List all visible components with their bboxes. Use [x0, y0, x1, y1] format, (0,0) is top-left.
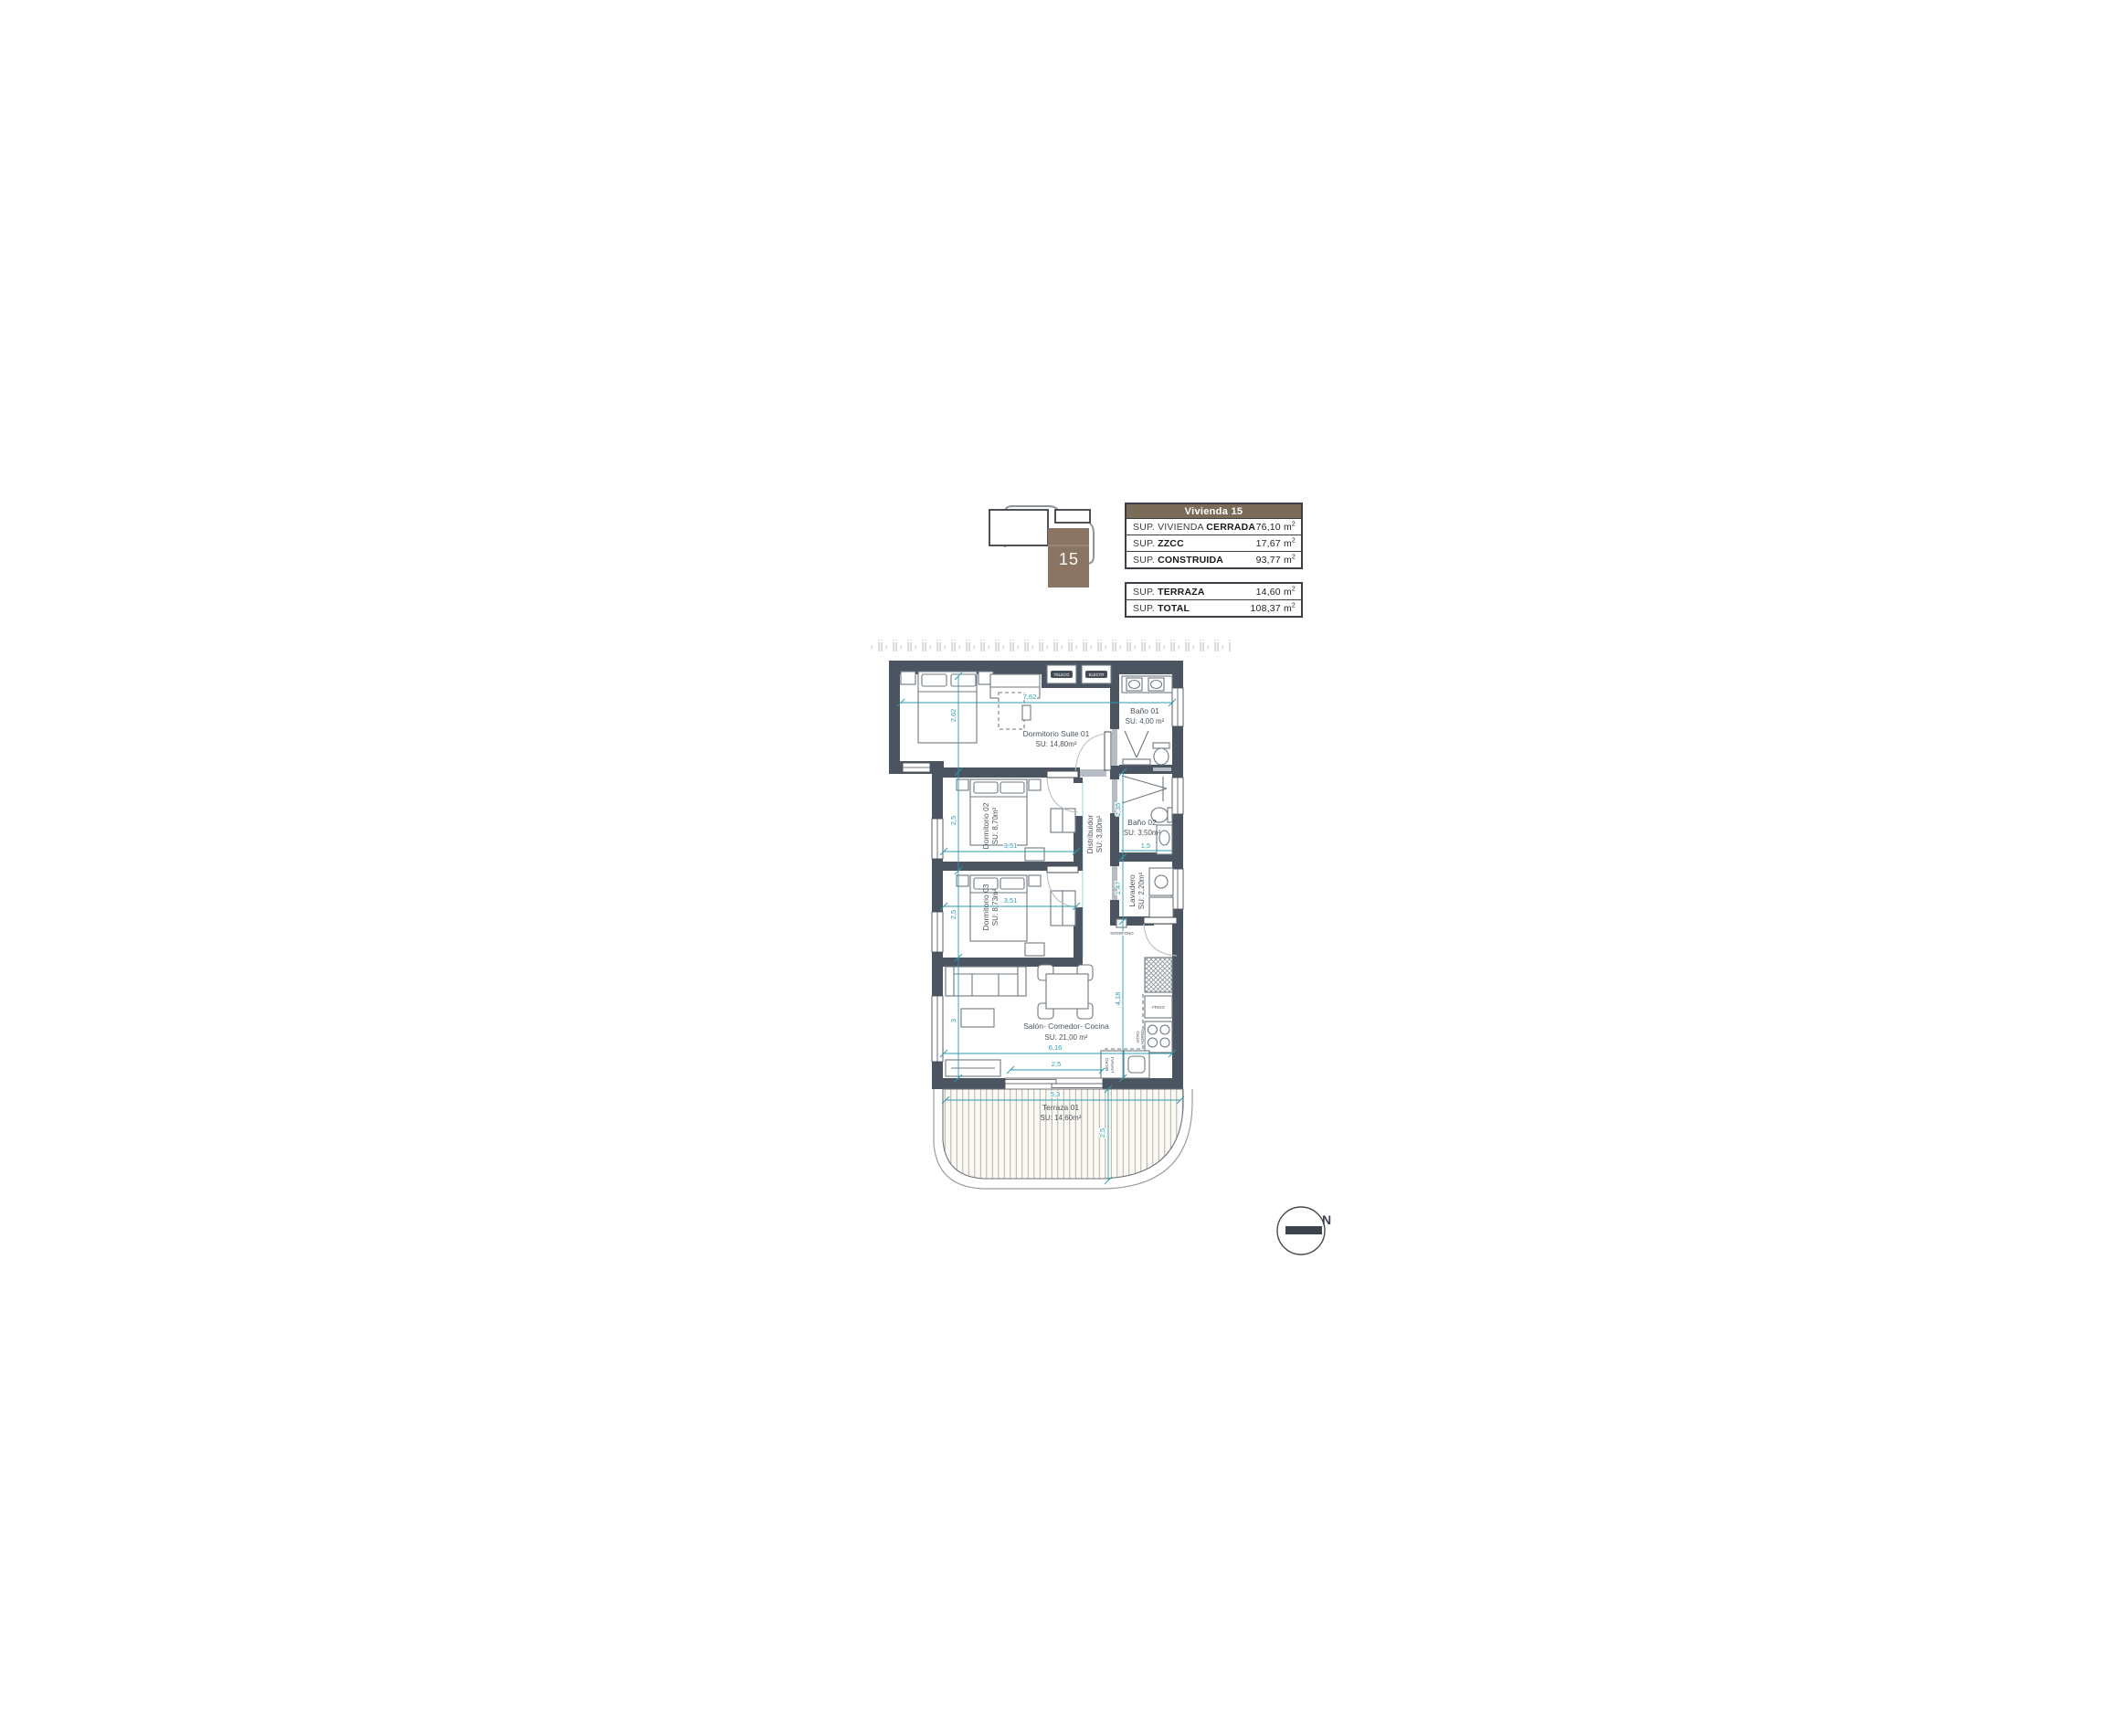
room-label-terraza-01: Terraza 01: [1042, 1103, 1079, 1112]
row-label: SUP. CONSTRUIDA: [1127, 555, 1223, 566]
row-label-text: SUP.: [1133, 603, 1158, 614]
row-value-text: 108,37 m: [1251, 603, 1292, 614]
pillow: [1000, 878, 1024, 889]
room-label-bano-02: Baño 02: [1127, 818, 1157, 827]
entry-door: [1144, 917, 1177, 956]
sliding-door: [1005, 1078, 1103, 1089]
pillow: [922, 674, 947, 686]
sink-basin: [1151, 681, 1162, 689]
room-label-dormitorio-02: Dormitorio 02: [981, 802, 990, 849]
window: [932, 912, 943, 952]
room-area-salon-comedor-cocina: SU: 21,00 m²: [1044, 1033, 1087, 1042]
row-label-bold: CONSTRUIDA: [1158, 555, 1223, 566]
dim-label: 3,51: [1004, 896, 1018, 905]
row-label-bold: ZZCC: [1158, 538, 1184, 549]
pillow: [1000, 782, 1024, 793]
door: [1047, 771, 1078, 812]
room-area-dormitorio-suite-01: SU: 14,80m²: [1036, 740, 1077, 748]
dim-label: 2,5: [1052, 1060, 1061, 1068]
row-value-text: 76,10 m: [1256, 522, 1292, 533]
row-value: 108,37 m2: [1251, 603, 1301, 614]
plan-canvas: 15: [0, 0, 2105, 1736]
sink-basin: [1129, 681, 1140, 689]
sofa: [946, 967, 1026, 996]
table-row: SUP. CONSTRUIDA 93,77 m2: [1127, 551, 1301, 567]
dim-label: 2,5: [1098, 1128, 1106, 1138]
teleco-label: TELECO: [1054, 672, 1070, 677]
row-value-sup: 2: [1292, 537, 1296, 544]
sofa-armrest: [1018, 967, 1026, 996]
pantry-column: [1145, 958, 1172, 992]
row-value-sup: 2: [1292, 586, 1296, 592]
row-label: SUP. ZZCC: [1127, 538, 1184, 549]
dim-label: 6,16: [1049, 1043, 1063, 1052]
sink-basin: [1159, 831, 1169, 845]
summary-table-totals: SUP. TERRAZA 14,60 m2 SUP. TOTAL 108,37 …: [1125, 582, 1303, 618]
toilet-tank: [1168, 808, 1172, 822]
pillow: [951, 674, 976, 686]
room-area-dormitorio-02: SU: 8,70m²: [991, 807, 1000, 844]
row-value-text: 14,60 m: [1256, 587, 1292, 598]
dim-label: 2,5: [949, 910, 957, 919]
dresser: [1025, 848, 1044, 861]
room-area-lavadero: SU: 2,20m²: [1137, 872, 1146, 909]
door-threshold: [1080, 769, 1106, 777]
wall-segment: [1119, 765, 1183, 774]
coffee-table: [961, 1009, 994, 1027]
table-row: SUP. TOTAL 108,37 m2: [1127, 599, 1301, 616]
laundry-cabinet: [1149, 897, 1173, 917]
room-label-dormitorio-03: Dormitorio 03: [981, 884, 990, 930]
wall-segment: [1074, 778, 1083, 783]
window: [903, 763, 930, 772]
row-value-sup: 2: [1292, 602, 1296, 609]
row-value: 93,77 m2: [1256, 555, 1301, 566]
window: [1172, 688, 1183, 726]
key-plan-block: [1055, 510, 1090, 523]
table-row: SUP. TERRAZA 14,60 m2: [1127, 584, 1301, 599]
window: [1172, 778, 1183, 814]
key-plan-block: [989, 510, 1048, 545]
row-label-text: SUP.: [1133, 538, 1158, 549]
key-plan-unit-number: 15: [1059, 550, 1079, 568]
table-row: SUP. ZZCC 17,67 m2: [1127, 535, 1301, 551]
row-value: 76,10 m2: [1256, 522, 1301, 533]
floor-plan-sheet: 15: [0, 0, 2105, 1736]
dim-label: 3,51: [1004, 842, 1018, 850]
desk-dashed: [999, 693, 1024, 729]
wall-segment: [1119, 852, 1183, 862]
key-plan: 15: [989, 506, 1094, 587]
shower-symbol: [1122, 776, 1167, 803]
interfono-label: INTERFONO: [1110, 931, 1134, 936]
row-label-text: SUP. VIVIENDA: [1133, 522, 1206, 533]
dim-label: 2,35: [1114, 803, 1122, 817]
kitchen-sink: [1128, 1056, 1145, 1073]
dim-label: 4,18: [1114, 992, 1122, 1006]
room-label-lavadero: Lavadero: [1127, 874, 1137, 907]
north-label: N: [1322, 1212, 1331, 1227]
summary-table-header: Vivienda 15: [1127, 504, 1301, 518]
room-area-terraza-01: SU: 14,60m²: [1041, 1114, 1082, 1122]
interfono-unit: [1116, 919, 1127, 927]
lavavajillas-label: LAVAVAJ.: [1110, 1056, 1115, 1074]
nightstand: [1029, 875, 1041, 886]
row-value: 14,60 m2: [1256, 587, 1301, 598]
row-label: SUP. TOTAL: [1127, 603, 1190, 614]
window: [932, 819, 943, 859]
dim-label: 3: [949, 1019, 957, 1022]
row-value-text: 93,77 m: [1256, 555, 1292, 566]
dresser: [1025, 943, 1044, 956]
washer-drum: [1155, 875, 1168, 888]
row-label: SUP. TERRAZA: [1127, 587, 1205, 598]
row-label-bold: TOTAL: [1158, 603, 1190, 614]
room-label-bano-01: Baño 01: [1130, 706, 1159, 715]
nightstand: [1029, 779, 1041, 790]
row-label: SUP. VIVIENDA CERRADA: [1127, 522, 1255, 533]
dim-label: 1,47: [1114, 882, 1122, 895]
compass-needle: [1285, 1226, 1322, 1234]
row-value-text: 17,67 m: [1256, 538, 1292, 549]
toilet: [1154, 748, 1169, 765]
window: [932, 996, 943, 1062]
pillow: [974, 782, 998, 793]
fridge-label: FRIGO: [1152, 1005, 1165, 1010]
row-value: 17,67 m2: [1256, 538, 1301, 549]
wall-segment: [889, 661, 900, 774]
wall-segment: [943, 958, 1083, 967]
room-label-salon-comedor-cocina: Salón- Comedor- Cocina: [1023, 1021, 1109, 1031]
row-label-bold: CERRADA: [1206, 522, 1255, 533]
shower-tray: [1123, 759, 1150, 765]
dining-table: [1046, 974, 1088, 1009]
dim-label: 2,5: [949, 816, 957, 825]
room-label-dormitorio-suite-01: Dormitorio Suite 01: [1023, 729, 1090, 738]
table-row: SUP. VIVIENDA CERRADA 76,10 m2: [1127, 518, 1301, 535]
room-area-distribuidor: SU: 3,80m²: [1095, 815, 1104, 852]
dim-label: 1,5: [1141, 842, 1150, 850]
summary-table-main: Vivienda 15 SUP. VIVIENDA CERRADA 76,10 …: [1125, 503, 1303, 569]
towel-rail: [1153, 767, 1171, 771]
north-arrow: N: [1277, 1207, 1331, 1254]
row-label-text: SUP.: [1133, 587, 1158, 598]
shower-symbol: [1125, 731, 1148, 757]
row-value-sup: 2: [1292, 521, 1296, 527]
electr-label: ELECTR: [1089, 672, 1105, 677]
row-label-text: SUP.: [1133, 555, 1158, 566]
room-label-distribuidor: Distribuidor: [1085, 814, 1095, 853]
door-threshold: [1112, 729, 1117, 766]
room-area-bano-02: SU: 3,50m²: [1124, 829, 1161, 837]
dim-label: 7,62: [1023, 693, 1037, 701]
dim-label: 2,62: [949, 709, 957, 723]
toilet-tank: [1153, 743, 1169, 748]
micro-label: MICRO: [1105, 1057, 1109, 1071]
desk-chair: [1022, 705, 1031, 720]
room-area-dormitorio-03: SU: 8,73m²: [991, 888, 1000, 926]
room-area-bano-01: SU: 4,00 m²: [1126, 717, 1165, 725]
row-value-sup: 2: [1292, 554, 1296, 560]
wall-segment: [1110, 813, 1119, 866]
nightstand: [901, 672, 915, 684]
dim-label: 5,3: [1051, 1090, 1060, 1098]
party-wall-hatch: [870, 640, 1232, 651]
row-label-bold: TERRAZA: [1158, 587, 1205, 598]
window: [1172, 869, 1183, 909]
horno-label: HORNO: [1140, 1029, 1145, 1044]
sofa-armrest: [946, 967, 954, 996]
